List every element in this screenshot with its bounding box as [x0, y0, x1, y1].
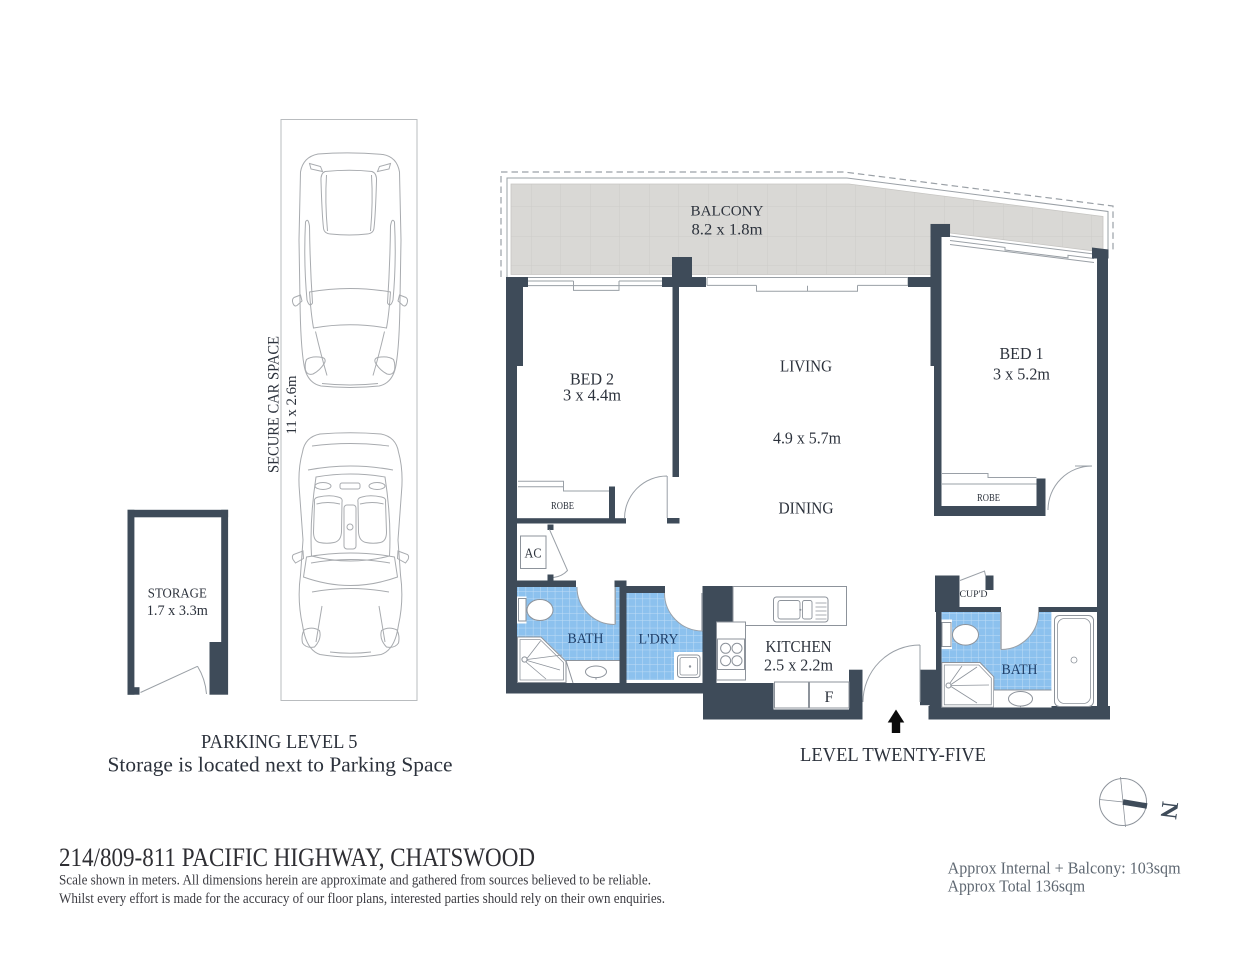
svg-text:Storage is located next to Par: Storage is located next to Parking Space	[108, 753, 453, 777]
svg-text:LIVING: LIVING	[780, 357, 832, 376]
svg-text:Approx Internal + Balcony: 10: Approx Internal + Balcony: 103sqm	[948, 859, 1181, 878]
svg-text:4.9 x 5.7m: 4.9 x 5.7m	[773, 429, 841, 448]
svg-text:ROBE: ROBE	[977, 493, 1000, 504]
svg-text:11 x 2.6m: 11 x 2.6m	[284, 375, 300, 434]
svg-text:214/809-811 PACIFIC HIGHWAY, C: 214/809-811 PACIFIC HIGHWAY, CHATSWOOD	[59, 843, 535, 872]
svg-text:2.5 x 2.2m: 2.5 x 2.2m	[764, 655, 833, 674]
svg-text:BALCONY: BALCONY	[691, 204, 764, 220]
svg-text:L'DRY: L'DRY	[639, 632, 679, 648]
svg-text:Approx Total 136sqm: Approx Total 136sqm	[948, 877, 1086, 896]
svg-text:SECURE CAR SPACE: SECURE CAR SPACE	[266, 336, 283, 473]
svg-text:1.7 x 3.3m: 1.7 x 3.3m	[147, 603, 208, 619]
svg-text:DINING: DINING	[779, 499, 834, 518]
svg-text:KITCHEN: KITCHEN	[766, 637, 832, 656]
svg-text:LEVEL TWENTY-FIVE: LEVEL TWENTY-FIVE	[800, 745, 986, 766]
svg-text:F: F	[825, 689, 834, 706]
svg-text:CUP'D: CUP'D	[960, 590, 988, 600]
svg-text:Whilst every effort is made fo: Whilst every effort is made for the accu…	[59, 891, 665, 907]
svg-text:N: N	[1154, 800, 1182, 821]
svg-text:AC: AC	[525, 547, 542, 562]
svg-text:BED 1: BED 1	[1000, 344, 1044, 363]
svg-text:Scale shown in meters. All dim: Scale shown in meters. All dimensions he…	[59, 873, 651, 889]
svg-text:ROBE: ROBE	[551, 501, 574, 512]
svg-text:PARKING LEVEL 5: PARKING LEVEL 5	[201, 731, 358, 753]
svg-text:BATH: BATH	[568, 631, 604, 647]
svg-text:3 x 4.4m: 3 x 4.4m	[563, 386, 621, 405]
svg-text:3 x 5.2m: 3 x 5.2m	[993, 365, 1050, 384]
svg-text:STORAGE: STORAGE	[148, 585, 207, 600]
svg-text:8.2 x 1.8m: 8.2 x 1.8m	[692, 222, 764, 239]
svg-text:BATH: BATH	[1002, 662, 1038, 678]
